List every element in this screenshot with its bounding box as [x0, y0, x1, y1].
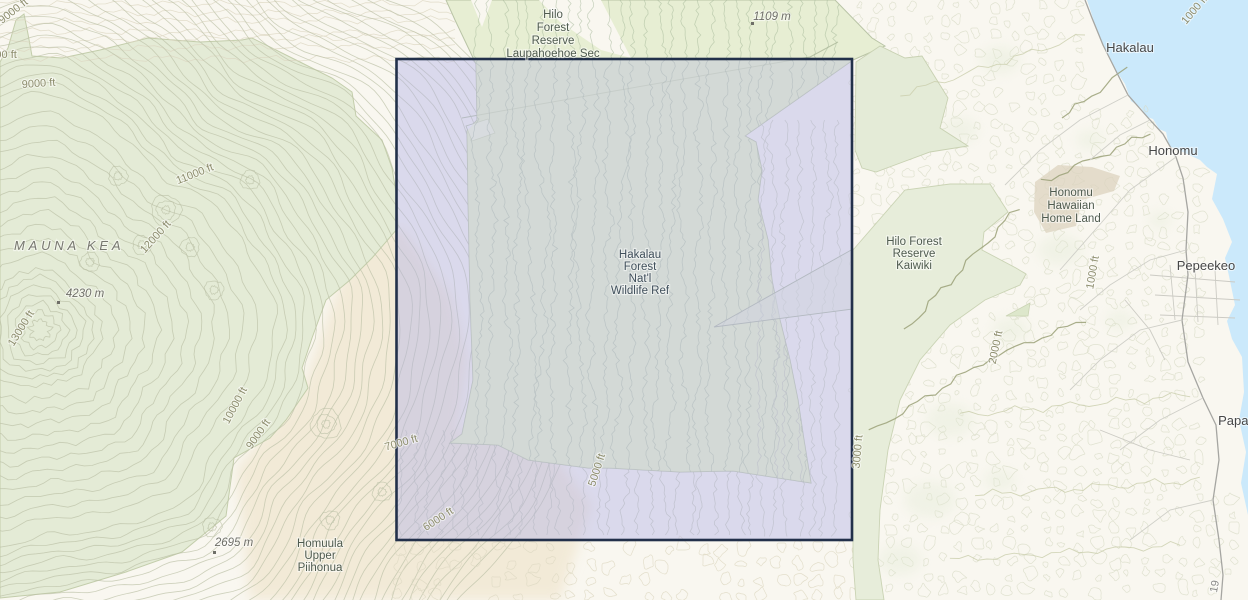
svg-text:19: 19: [1208, 579, 1222, 593]
svg-text:Hakalau: Hakalau: [1106, 40, 1154, 55]
svg-text:Piihonua: Piihonua: [298, 562, 343, 574]
svg-text:Home Land: Home Land: [1041, 213, 1100, 225]
svg-text:Nat'l: Nat'l: [629, 273, 652, 285]
svg-text:Hakalau: Hakalau: [619, 249, 661, 261]
svg-text:Wildlife Ref: Wildlife Ref: [611, 285, 670, 297]
svg-text:Hawaiian: Hawaiian: [1047, 200, 1094, 212]
svg-text:Honomu: Honomu: [1049, 187, 1092, 199]
svg-text:Upper: Upper: [304, 550, 335, 562]
svg-text:Laupahoehoe Sec: Laupahoehoe Sec: [506, 48, 600, 60]
svg-text:Hilo: Hilo: [543, 9, 563, 21]
svg-text:Kaiwiki: Kaiwiki: [896, 260, 932, 272]
svg-text:MAUNA KEA: MAUNA KEA: [14, 238, 124, 253]
svg-text:4230 m: 4230 m: [66, 288, 105, 300]
svg-text:Forest: Forest: [624, 261, 657, 273]
svg-text:2695 m: 2695 m: [214, 537, 254, 549]
svg-text:Reserve: Reserve: [532, 35, 575, 47]
svg-text:Homuula: Homuula: [297, 538, 344, 550]
svg-text:Honomu: Honomu: [1148, 143, 1197, 158]
svg-text:9000 ft: 9000 ft: [0, 49, 17, 61]
svg-text:9000 ft: 9000 ft: [21, 77, 55, 91]
svg-text:Hilo Forest: Hilo Forest: [886, 236, 942, 248]
svg-text:Pepeekeo: Pepeekeo: [1177, 258, 1236, 273]
svg-text:1109 m: 1109 m: [753, 11, 791, 23]
svg-text:Papaik: Papaik: [1218, 413, 1248, 428]
svg-text:Forest: Forest: [537, 22, 570, 34]
svg-text:Reserve: Reserve: [893, 248, 936, 260]
